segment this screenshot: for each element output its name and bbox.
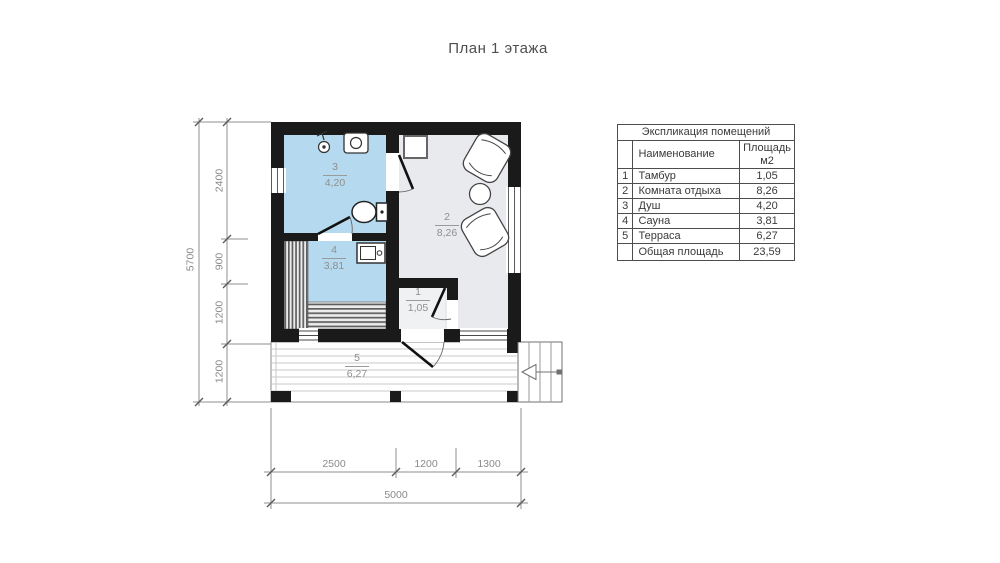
heater-box-icon: [404, 136, 427, 158]
room-number: 4: [322, 244, 346, 259]
wall-left: [271, 135, 284, 342]
dim-bottom-seg-1: 2500: [304, 458, 364, 471]
dim-left-seg-4: 1200: [214, 342, 227, 402]
room-label-entry: 1 1,05: [386, 286, 450, 314]
window-left: [269, 168, 286, 193]
window-bottom-right: [460, 328, 507, 343]
room-area: 6,27: [325, 367, 389, 381]
round-table-icon: [470, 184, 491, 205]
window-bottom-small: [299, 328, 318, 343]
floor-plan-page: План 1 этажа 3 4,20 2 8,26 4 3,81 1 1,05…: [0, 0, 1000, 563]
total-label: Общая площадь: [633, 244, 740, 261]
table-row: 3 Душ 4,20: [618, 199, 795, 214]
explication-table: Экспликация помещений Наименование Площа…: [617, 124, 795, 261]
room-number: 1: [406, 286, 430, 301]
room-area: 8,26: [415, 226, 479, 240]
table-row: 1 Тамбур 1,05: [618, 169, 795, 184]
room-area: 4,20: [303, 176, 367, 190]
window-right: [506, 187, 523, 273]
page-title: План 1 этажа: [398, 40, 598, 57]
sink-icon: [344, 133, 368, 153]
header-name: Наименование: [633, 141, 740, 169]
room-label-shower: 3 4,20: [303, 161, 367, 189]
dim-left-seg-1: 2400: [214, 151, 227, 211]
dim-bottom-seg-3: 1300: [459, 458, 519, 471]
room-area: 1,05: [386, 301, 450, 315]
wall-shower-sauna-left: [284, 233, 318, 241]
header-area: Площадь м2: [740, 141, 795, 169]
dim-left-total: 5700: [185, 230, 198, 290]
dim-bottom-total: 5000: [366, 489, 426, 502]
table-row: 4 Сауна 3,81: [618, 214, 795, 229]
table-row: 2 Комната отдыха 8,26: [618, 184, 795, 199]
room-label-lounge: 2 8,26: [415, 211, 479, 239]
room-label-sauna: 4 3,81: [302, 244, 366, 272]
table-title: Экспликация помещений: [618, 125, 795, 141]
room-area: 3,81: [302, 259, 366, 273]
table-total-row: Общая площадь 23,59: [618, 244, 795, 261]
header-num: [618, 141, 633, 169]
stairs: [518, 342, 562, 402]
room-number: 3: [323, 161, 347, 176]
room-number: 5: [345, 352, 369, 367]
floor-plan-drawing: [0, 0, 1000, 563]
room-label-terrace: 5 6,27: [325, 352, 389, 380]
dim-bottom-seg-2: 1200: [396, 458, 456, 471]
dim-left-seg-3: 1200: [214, 283, 227, 343]
terrace: [271, 342, 518, 402]
table-row: 5 Терраса 6,27: [618, 229, 795, 244]
toilet-icon: [352, 202, 388, 223]
total-area: 23,59: [740, 244, 795, 261]
room-number: 2: [435, 211, 459, 226]
wall-shower-sauna-right: [352, 233, 386, 241]
